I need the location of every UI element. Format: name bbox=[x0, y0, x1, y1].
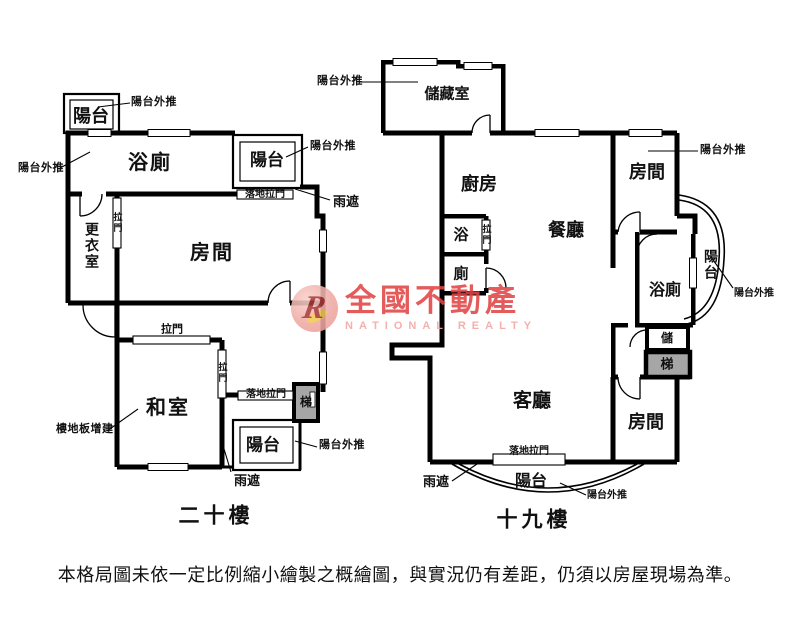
sliding-door-strips-19f bbox=[482, 220, 565, 465]
door-arcs-20f bbox=[80, 194, 290, 337]
floorplan-page: 陽台 陽台外推 浴廁 陽台 落地拉門 陽台外推 雨遮 陽台外推 更衣室 拉門 房… bbox=[0, 0, 800, 620]
watermark-brand-name: 全國不動產 bbox=[345, 285, 537, 316]
watermark-subtitle: NATIONAL REALTY bbox=[345, 320, 537, 332]
floorplan-20f bbox=[60, 94, 330, 472]
floorplan-19f bbox=[360, 59, 733, 496]
stairs-box-20f bbox=[294, 384, 318, 421]
balcony-outline-20f-top-left bbox=[64, 94, 119, 133]
balcony-outline-20f-bottom bbox=[233, 420, 300, 470]
realty-logo-icon: R bbox=[291, 285, 338, 332]
logo-letter: R bbox=[300, 290, 329, 327]
curved-balcony-19f-bottom bbox=[452, 464, 644, 492]
sliding-door-strips-20f bbox=[113, 190, 293, 400]
door-arcs-19f bbox=[472, 115, 657, 399]
stairs-box-19f bbox=[646, 352, 690, 377]
balcony-outline-20f-top-right bbox=[233, 135, 302, 188]
window-symbols-19f bbox=[393, 59, 697, 289]
realty-watermark: R 全國不動產 NATIONAL REALTY bbox=[291, 285, 537, 332]
disclaimer-text: 本格局圖未依一定比例縮小繪製之概繪圖，與實況仍有差距，仍須以房屋現場為準。 bbox=[0, 561, 800, 587]
watermark-text: 全國不動產 NATIONAL REALTY bbox=[345, 285, 537, 332]
closet-box-19f bbox=[647, 327, 688, 350]
